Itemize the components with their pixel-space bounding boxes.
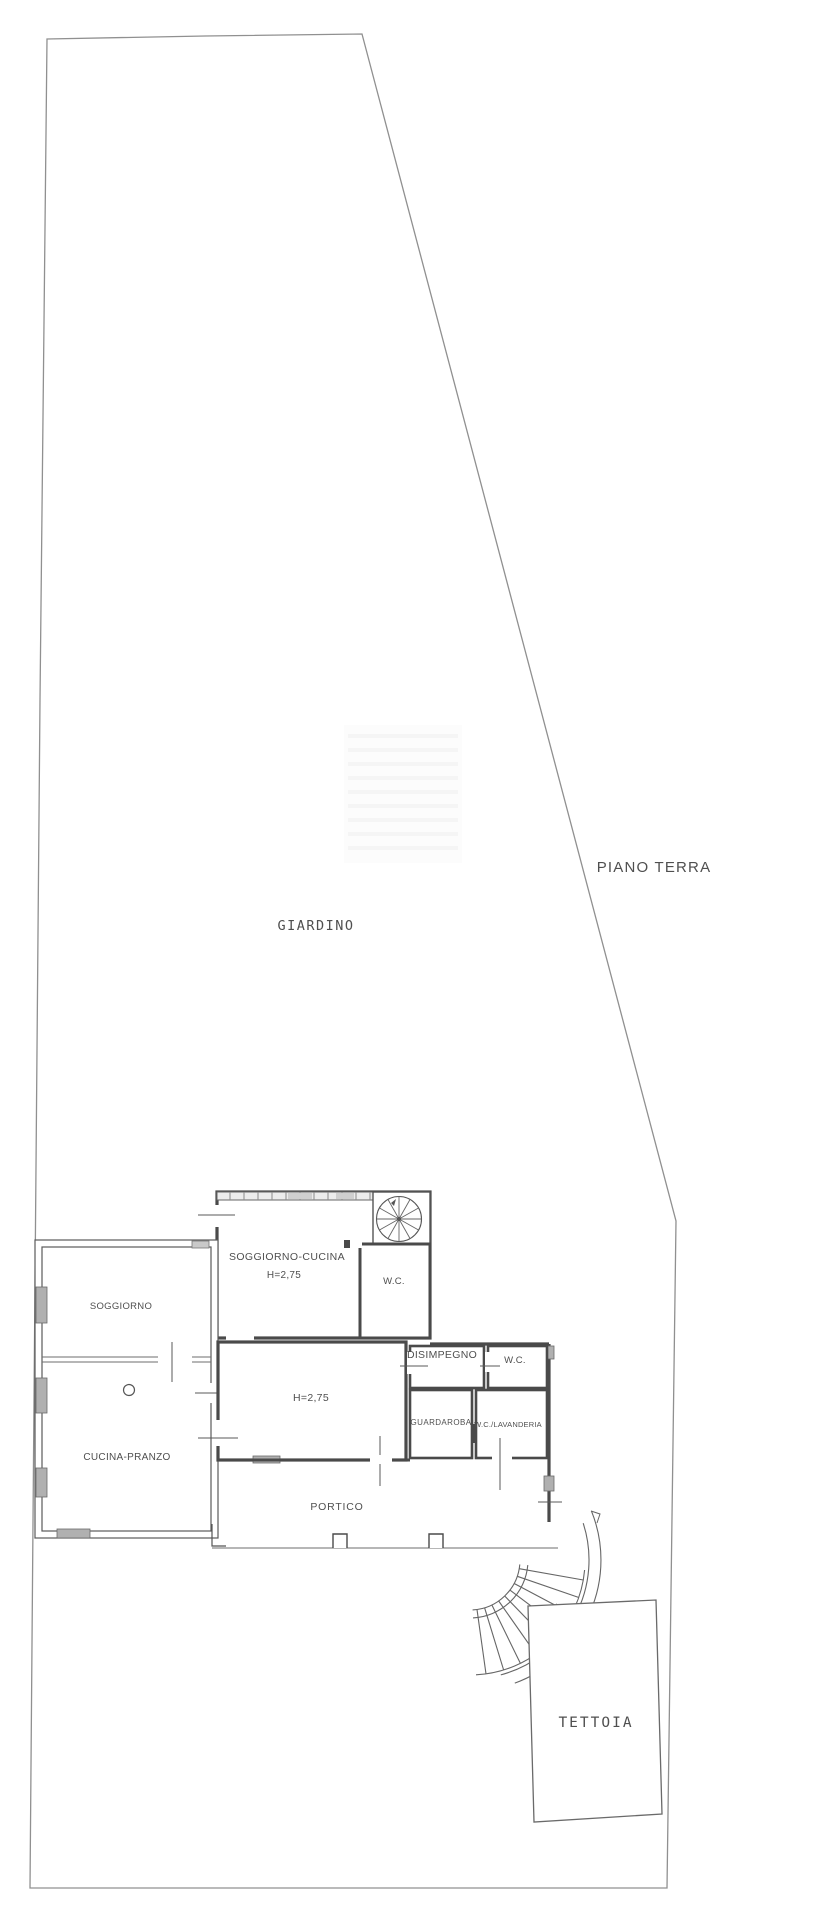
window-cucina-2 — [36, 1468, 47, 1497]
window-cucina-1 — [36, 1378, 47, 1413]
label-giardino: GIARDINO — [277, 918, 354, 934]
porch-portico — [212, 1455, 562, 1548]
window-right-2 — [544, 1476, 554, 1491]
floor-plan-page: PIANO TERRA GIARDINO SOGGIORNO-CUCINA H=… — [0, 0, 823, 1920]
page-title: PIANO TERRA — [597, 859, 712, 876]
label-wc-upper: W.C. — [383, 1276, 405, 1287]
label-soggiorno-cucina: SOGGIORNO-CUCINA — [229, 1251, 345, 1263]
room-wc-lavanderia — [472, 1390, 547, 1490]
label-wc-hall: W.C. — [504, 1355, 526, 1366]
label-central-height: H=2,75 — [293, 1392, 329, 1404]
porch-pillar-2 — [429, 1534, 443, 1548]
spiral-staircase — [373, 1192, 430, 1244]
room-central — [198, 1342, 406, 1486]
label-soggiorno-cucina-height: H=2,75 — [267, 1270, 301, 1281]
label-wc-lavanderia: W.C./LAVANDERIA — [474, 1420, 542, 1429]
label-tettoia: TETTOIA — [558, 1715, 633, 1731]
porch-pillar-1 — [333, 1534, 347, 1548]
faint-ghost-region — [344, 725, 462, 863]
threshold — [192, 1241, 209, 1248]
label-guardaroba: GUARDAROBA — [411, 1418, 472, 1427]
window-bottom — [57, 1529, 90, 1538]
label-disimpegno: DISIMPEGNO — [407, 1349, 477, 1361]
window-soggiorno — [36, 1287, 47, 1323]
label-portico: PORTICO — [310, 1501, 363, 1513]
label-cucina-pranzo: CUCINA-PRANZO — [83, 1452, 170, 1463]
floor-plan-canvas: PIANO TERRA GIARDINO SOGGIORNO-CUCINA H=… — [0, 0, 823, 1920]
label-soggiorno: SOGGIORNO — [90, 1301, 152, 1312]
canopy-tettoia — [528, 1600, 662, 1822]
room-wc-hall — [480, 1346, 547, 1388]
left-wing — [35, 1240, 238, 1538]
